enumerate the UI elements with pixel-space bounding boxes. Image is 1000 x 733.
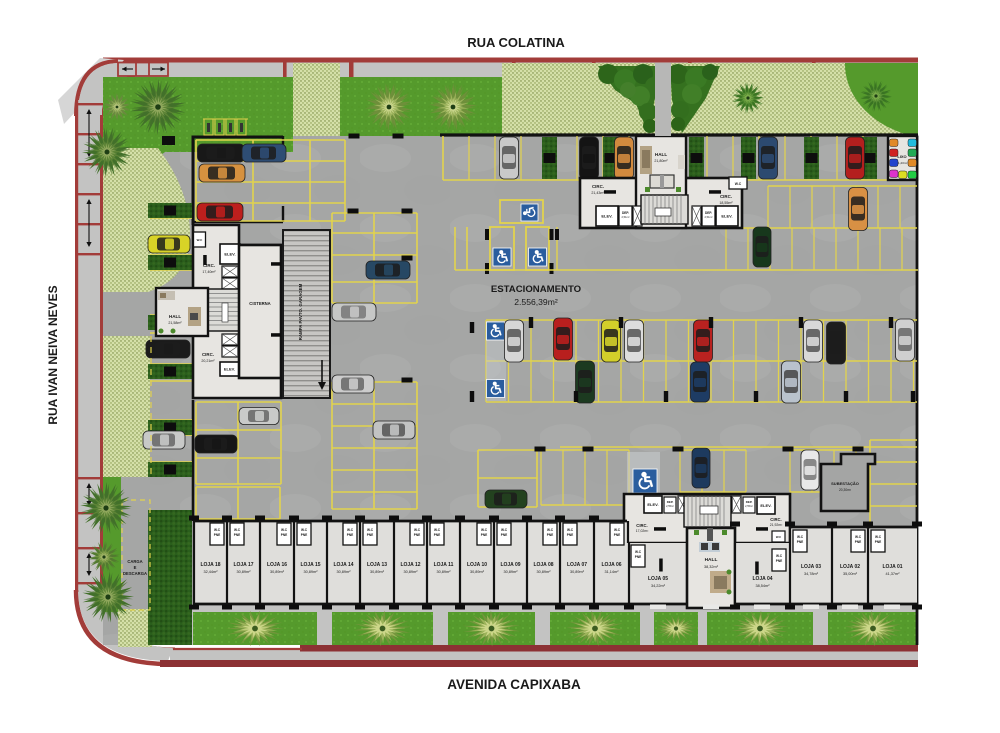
svg-text:PNE: PNE <box>614 533 621 537</box>
svg-text:PNE: PNE <box>567 533 574 537</box>
svg-text:RUA IVAN NEIVA NEVES: RUA IVAN NEIVA NEVES <box>46 285 60 424</box>
svg-text:21,92m²: 21,92m² <box>770 523 783 527</box>
svg-text:W.C: W.C <box>301 528 308 532</box>
svg-text:LOJA 13: LOJA 13 <box>367 562 387 568</box>
svg-text:W.C: W.C <box>347 528 354 532</box>
svg-text:PNE: PNE <box>481 533 488 537</box>
svg-text:PNE: PNE <box>214 533 221 537</box>
svg-text:W.C: W.C <box>434 528 441 532</box>
svg-text:DESCARGA: DESCARGA <box>123 571 147 576</box>
svg-text:LOJA 14: LOJA 14 <box>333 562 353 568</box>
svg-text:LIXO: LIXO <box>897 154 906 159</box>
svg-text:W.C: W.C <box>567 528 574 532</box>
svg-text:W.C: W.C <box>234 528 241 532</box>
svg-text:W.C: W.C <box>776 554 783 558</box>
svg-text:DEP.: DEP. <box>622 211 629 215</box>
svg-text:HALL: HALL <box>169 314 181 319</box>
svg-text:ELEV.: ELEV. <box>224 367 235 372</box>
svg-text:ELEV.: ELEV. <box>601 214 612 219</box>
svg-text:HALL: HALL <box>705 557 718 563</box>
svg-text:20,30m²: 20,30m² <box>839 488 852 492</box>
svg-text:SUBESTAÇÃO: SUBESTAÇÃO <box>831 481 859 486</box>
svg-text:DEP.: DEP. <box>667 500 674 504</box>
svg-text:W.C: W.C <box>414 528 421 532</box>
svg-text:PNE: PNE <box>281 533 288 537</box>
svg-text:30,89m²: 30,89m² <box>437 570 452 574</box>
svg-text:LOJA 12: LOJA 12 <box>400 562 420 568</box>
svg-text:DEP.: DEP. <box>705 211 712 215</box>
svg-text:W.C: W.C <box>776 535 781 539</box>
svg-text:CIRC.: CIRC. <box>636 523 647 528</box>
svg-text:LOJA 17: LOJA 17 <box>233 562 253 568</box>
svg-text:30,89m²: 30,89m² <box>337 570 352 574</box>
svg-text:W.C: W.C <box>197 238 203 242</box>
svg-text:PNE: PNE <box>776 559 783 563</box>
svg-text:CIRC.: CIRC. <box>770 517 781 522</box>
svg-text:E: E <box>134 565 137 570</box>
svg-text:LOJA 01: LOJA 01 <box>882 564 902 570</box>
svg-text:ESTACIONAMENTO: ESTACIONAMENTO <box>491 284 582 295</box>
svg-text:W.C: W.C <box>875 535 882 539</box>
svg-text:RUA COLATINA: RUA COLATINA <box>467 35 565 50</box>
svg-text:ELEV.: ELEV. <box>647 502 658 507</box>
svg-text:LOJA 16: LOJA 16 <box>267 562 287 568</box>
svg-text:PNE: PNE <box>301 533 308 537</box>
svg-text:CIRC.: CIRC. <box>720 194 732 199</box>
svg-text:31,14m²: 31,14m² <box>605 570 620 574</box>
svg-text:CIRC.: CIRC. <box>203 263 215 268</box>
svg-text:W.C: W.C <box>501 528 508 532</box>
svg-text:W.C: W.C <box>281 528 288 532</box>
svg-text:2,55m²: 2,55m² <box>666 505 674 508</box>
svg-text:PNE: PNE <box>635 555 642 559</box>
svg-text:CISTERNA: CISTERNA <box>249 301 270 306</box>
svg-text:PNE: PNE <box>347 533 354 537</box>
svg-text:30,89m²: 30,89m² <box>404 570 419 574</box>
svg-text:PNE: PNE <box>797 540 804 544</box>
svg-text:LOJA 07: LOJA 07 <box>567 562 587 568</box>
svg-text:30,89m²: 30,89m² <box>237 570 252 574</box>
svg-text:18,55m²: 18,55m² <box>719 201 733 205</box>
svg-text:LOJA 10: LOJA 10 <box>467 562 487 568</box>
svg-text:PNE: PNE <box>434 533 441 537</box>
svg-text:PNE: PNE <box>501 533 508 537</box>
svg-text:CIRC.: CIRC. <box>202 352 214 357</box>
svg-text:30,89m²: 30,89m² <box>370 570 385 574</box>
svg-text:LOJA 06: LOJA 06 <box>601 562 621 568</box>
svg-text:HALL: HALL <box>655 152 667 157</box>
svg-text:PNE: PNE <box>875 540 882 544</box>
svg-text:RAMPA PAVTO. GARAGEM: RAMPA PAVTO. GARAGEM <box>298 283 303 340</box>
svg-text:2,51m²: 2,51m² <box>621 215 629 219</box>
svg-text:LOJA 09: LOJA 09 <box>500 562 520 568</box>
svg-text:34,22m²: 34,22m² <box>651 584 666 588</box>
svg-text:LOJA 18: LOJA 18 <box>200 562 220 568</box>
svg-text:PNE: PNE <box>855 540 862 544</box>
svg-text:2,51m²: 2,51m² <box>704 215 712 219</box>
svg-text:2,55m²: 2,55m² <box>745 505 753 508</box>
svg-text:PNE: PNE <box>234 533 241 537</box>
svg-text:LOJA 11: LOJA 11 <box>434 562 454 568</box>
svg-text:30,89m²: 30,89m² <box>304 570 319 574</box>
svg-text:LOJA 04: LOJA 04 <box>752 576 772 582</box>
svg-text:LOJA 08: LOJA 08 <box>533 562 553 568</box>
svg-text:38,54m²: 38,54m² <box>756 584 771 588</box>
svg-text:W.C: W.C <box>547 528 554 532</box>
svg-text:W.C: W.C <box>735 182 742 186</box>
svg-text:21,43m²: 21,43m² <box>591 191 605 195</box>
svg-text:LOJA 02: LOJA 02 <box>840 564 860 570</box>
svg-text:W.C: W.C <box>367 528 374 532</box>
svg-text:30,89m²: 30,89m² <box>470 570 485 574</box>
svg-text:W.C: W.C <box>614 528 621 532</box>
svg-text:LOJA 03: LOJA 03 <box>801 564 821 570</box>
svg-text:AVENIDA CAPIXABA: AVENIDA CAPIXABA <box>447 677 581 692</box>
svg-text:W.C: W.C <box>635 550 642 554</box>
svg-text:CIRC.: CIRC. <box>592 184 604 189</box>
svg-text:PNE: PNE <box>367 533 374 537</box>
svg-text:DEP.: DEP. <box>746 500 753 504</box>
svg-text:41,37m²: 41,37m² <box>886 572 901 576</box>
svg-text:32,44m²: 32,44m² <box>204 570 219 574</box>
svg-text:30,89m²: 30,89m² <box>537 570 552 574</box>
svg-text:PNE: PNE <box>414 533 421 537</box>
svg-text:W.C: W.C <box>797 535 804 539</box>
svg-text:21,58m²: 21,58m² <box>168 321 182 325</box>
svg-text:34,78m²: 34,78m² <box>804 572 819 576</box>
svg-text:38,32m²: 38,32m² <box>704 565 719 569</box>
svg-text:ELEV.: ELEV. <box>760 503 771 508</box>
svg-text:ELEV.: ELEV. <box>224 252 235 257</box>
svg-text:30,89m²: 30,89m² <box>570 570 585 574</box>
svg-text:CARGA: CARGA <box>127 559 142 564</box>
svg-text:PNE: PNE <box>547 533 554 537</box>
svg-text:LOJA 05: LOJA 05 <box>648 576 668 582</box>
svg-text:W.C: W.C <box>855 535 862 539</box>
svg-text:21,80m²: 21,80m² <box>654 159 668 163</box>
svg-text:30,89m²: 30,89m² <box>270 570 285 574</box>
svg-text:17,02m²: 17,02m² <box>636 529 649 533</box>
svg-text:W.C: W.C <box>214 528 221 532</box>
svg-text:17,40m²: 17,40m² <box>202 270 216 274</box>
svg-text:LOJA 15: LOJA 15 <box>300 562 320 568</box>
svg-text:30,89m²: 30,89m² <box>504 570 519 574</box>
svg-text:W.C: W.C <box>481 528 488 532</box>
svg-text:2.556,39m²: 2.556,39m² <box>514 297 558 307</box>
svg-text:ELEV.: ELEV. <box>721 214 732 219</box>
svg-text:35,00m²: 35,00m² <box>843 572 858 576</box>
svg-text:20,21m²: 20,21m² <box>201 359 215 363</box>
